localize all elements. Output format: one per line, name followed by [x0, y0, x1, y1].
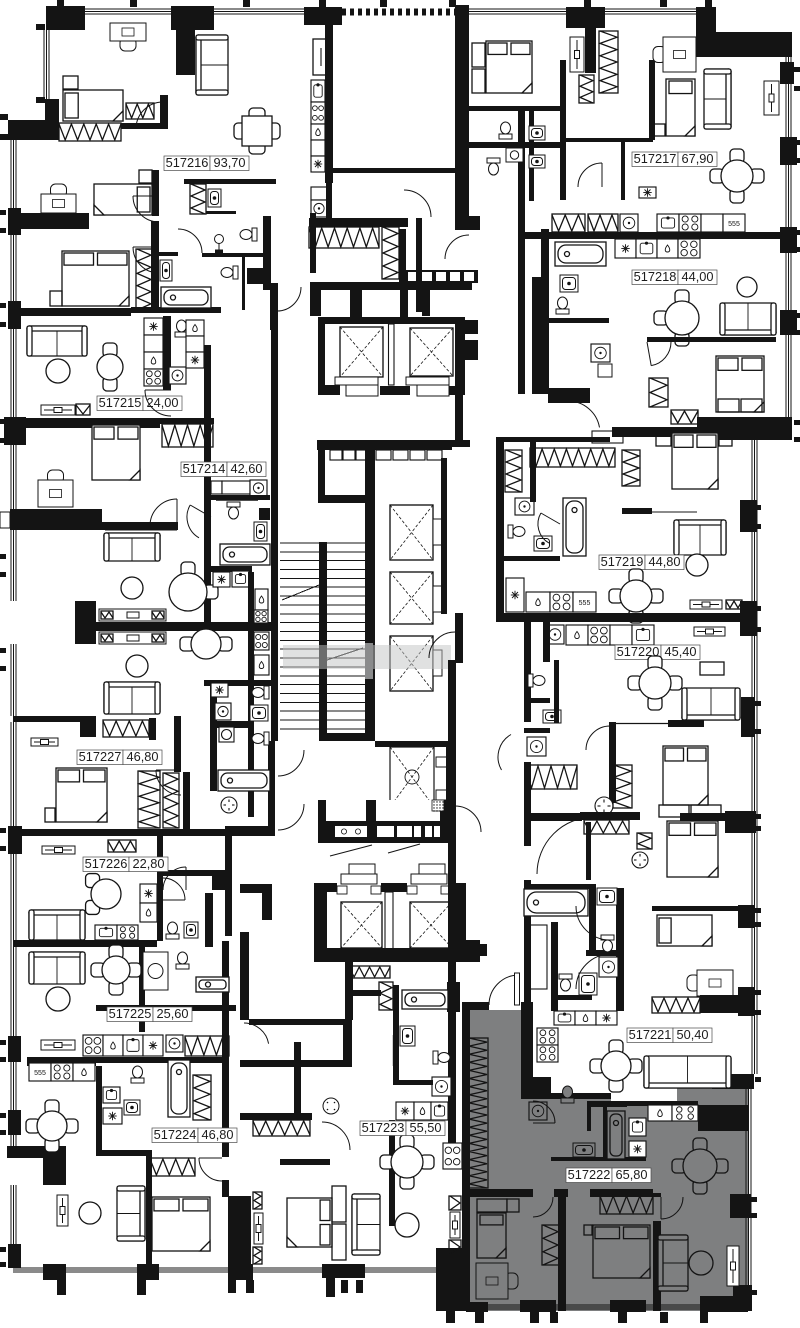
svg-text:517225: 517225	[109, 1006, 152, 1021]
svg-text:555: 555	[34, 1070, 46, 1077]
svg-text:517221: 517221	[629, 1027, 672, 1042]
svg-text:517217: 517217	[634, 151, 677, 166]
svg-text:517215: 517215	[99, 395, 142, 410]
svg-text:24,00: 24,00	[146, 395, 178, 410]
svg-text:46,80: 46,80	[201, 1127, 233, 1142]
svg-text:517222: 517222	[568, 1167, 611, 1182]
svg-text:45,40: 45,40	[664, 644, 696, 659]
svg-text:42,60: 42,60	[230, 461, 262, 476]
svg-text:25,60: 25,60	[156, 1006, 188, 1021]
svg-text:44,80: 44,80	[648, 554, 680, 569]
svg-text:517227: 517227	[79, 749, 122, 764]
svg-text:65,80: 65,80	[615, 1167, 647, 1182]
svg-text:517223: 517223	[362, 1120, 405, 1135]
svg-text:517218: 517218	[634, 269, 677, 284]
svg-text:67,90: 67,90	[681, 151, 713, 166]
svg-text:50,40: 50,40	[676, 1027, 708, 1042]
svg-text:44,00: 44,00	[681, 269, 713, 284]
svg-text:517216: 517216	[166, 155, 209, 170]
svg-text:517226: 517226	[85, 856, 128, 871]
svg-text:22,80: 22,80	[132, 856, 164, 871]
svg-text:555: 555	[728, 221, 740, 228]
svg-text:46,80: 46,80	[126, 749, 158, 764]
svg-text:93,70: 93,70	[213, 155, 245, 170]
svg-text:517224: 517224	[154, 1127, 197, 1142]
svg-text:517219: 517219	[601, 554, 644, 569]
svg-text:517214: 517214	[183, 461, 226, 476]
svg-text:555: 555	[579, 600, 591, 607]
svg-text:55,50: 55,50	[409, 1120, 441, 1135]
